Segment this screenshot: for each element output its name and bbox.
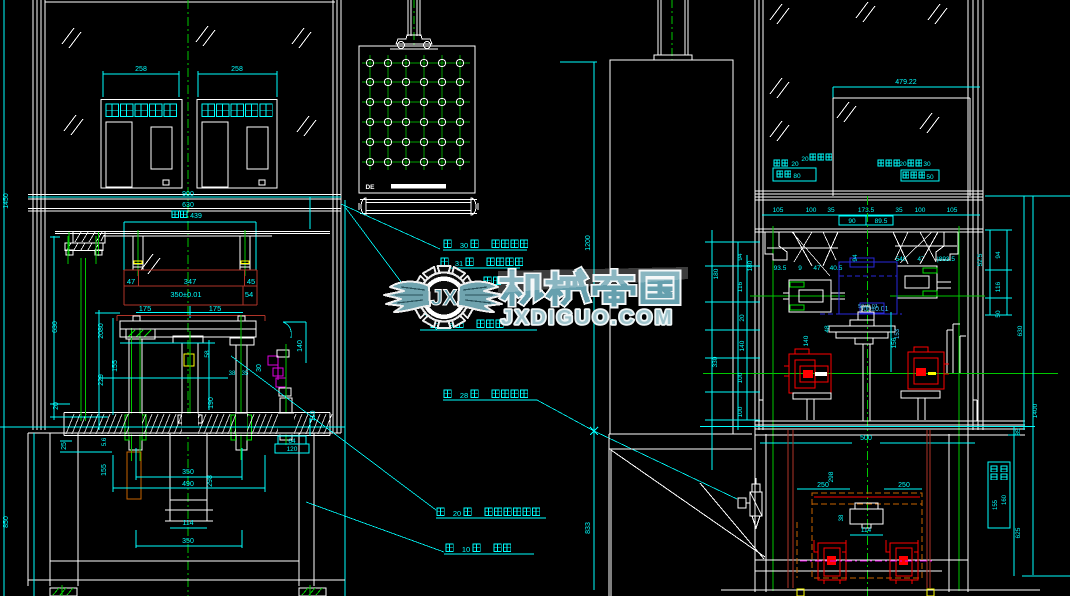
svg-text:50: 50 [995, 310, 1002, 318]
svg-text:38: 38 [229, 371, 236, 377]
svg-text:89.5: 89.5 [875, 218, 888, 225]
svg-text:35: 35 [242, 371, 249, 377]
svg-text:350±0.01: 350±0.01 [170, 290, 201, 299]
svg-text:330: 330 [712, 356, 719, 367]
svg-text:850: 850 [3, 516, 10, 528]
svg-text:30: 30 [256, 364, 263, 372]
svg-text:47: 47 [127, 277, 135, 286]
svg-text:JXDIGUO.COM: JXDIGUO.COM [501, 306, 674, 329]
svg-text:350: 350 [182, 469, 194, 476]
svg-text:116: 116 [737, 281, 744, 292]
svg-text:20: 20 [791, 161, 799, 168]
svg-text:180: 180 [747, 260, 754, 271]
svg-text:500: 500 [860, 435, 872, 442]
svg-text:20: 20 [801, 156, 809, 163]
svg-text:93.5: 93.5 [774, 265, 787, 272]
svg-text:175: 175 [209, 304, 222, 313]
svg-text:50±0.01: 50±0.01 [858, 304, 878, 310]
svg-text:105: 105 [947, 207, 958, 214]
svg-text:900: 900 [182, 191, 194, 198]
svg-text:153: 153 [895, 328, 901, 339]
svg-text:155: 155 [101, 464, 108, 476]
svg-text:347: 347 [184, 277, 197, 286]
svg-text:54: 54 [245, 290, 253, 299]
svg-text:1200: 1200 [585, 235, 592, 251]
svg-text:140: 140 [803, 335, 810, 346]
svg-text:85: 85 [1015, 428, 1022, 436]
svg-text:80: 80 [793, 173, 801, 180]
svg-text:48: 48 [824, 325, 831, 333]
svg-text:1450: 1450 [3, 193, 10, 209]
svg-text:833: 833 [585, 522, 592, 534]
svg-text:250: 250 [898, 482, 910, 489]
svg-text:45: 45 [247, 277, 255, 286]
svg-text:5.6: 5.6 [102, 437, 108, 446]
svg-text:490: 490 [182, 481, 194, 488]
svg-text:47: 47 [813, 265, 821, 272]
svg-text:630: 630 [1017, 325, 1024, 336]
svg-text:258: 258 [135, 66, 147, 73]
svg-text:350: 350 [182, 538, 194, 545]
svg-text:630: 630 [182, 202, 194, 209]
svg-text:40.5: 40.5 [830, 265, 843, 272]
svg-text:155: 155 [993, 499, 999, 510]
svg-text:|893.5: |893.5 [937, 256, 955, 263]
svg-text:94: 94 [852, 254, 859, 262]
svg-text:30: 30 [923, 161, 931, 168]
svg-text:9: 9 [798, 265, 802, 272]
svg-text:94: 94 [995, 251, 1002, 259]
svg-text:35: 35 [827, 207, 835, 214]
svg-text:28: 28 [460, 391, 468, 400]
svg-text:JX: JX [431, 285, 458, 310]
svg-text:100: 100 [737, 372, 744, 383]
svg-text:38: 38 [839, 514, 845, 521]
svg-text:630: 630 [52, 321, 59, 333]
svg-text:173.5: 173.5 [858, 207, 875, 214]
svg-text:120: 120 [287, 446, 298, 453]
svg-text:156: 156 [891, 337, 898, 348]
svg-text:20: 20 [739, 314, 746, 322]
svg-text:298: 298 [207, 475, 214, 487]
svg-text:DE: DE [365, 184, 375, 191]
svg-text:20: 20 [899, 161, 907, 168]
svg-text:94: 94 [737, 253, 744, 261]
svg-text:160: 160 [1002, 494, 1008, 505]
svg-text:30: 30 [460, 241, 468, 250]
svg-text:52.5: 52.5 [977, 253, 984, 266]
svg-text:116: 116 [995, 281, 1002, 292]
svg-text:25: 25 [61, 442, 68, 450]
svg-text:140: 140 [739, 340, 746, 351]
svg-text:298: 298 [828, 471, 835, 482]
svg-text:20: 20 [453, 509, 461, 518]
svg-text:10: 10 [462, 545, 470, 554]
svg-text:35: 35 [895, 207, 903, 214]
svg-text:100: 100 [806, 207, 817, 214]
svg-text:100: 100 [737, 406, 744, 417]
svg-text:105: 105 [773, 207, 784, 214]
svg-text:140: 140 [297, 340, 304, 352]
svg-text:50: 50 [926, 174, 934, 181]
svg-text:114: 114 [182, 520, 193, 527]
svg-text:90: 90 [848, 218, 856, 225]
svg-text:100: 100 [915, 207, 926, 214]
svg-text:58: 58 [204, 350, 211, 358]
svg-text:114: 114 [861, 527, 872, 534]
svg-text:258: 258 [231, 66, 243, 73]
svg-text:479.22: 479.22 [895, 79, 917, 86]
svg-text:439: 439 [190, 213, 202, 220]
svg-text:31: 31 [455, 259, 463, 268]
svg-text:175: 175 [139, 304, 152, 313]
svg-text:180: 180 [713, 268, 720, 279]
svg-text:625: 625 [1015, 527, 1022, 538]
